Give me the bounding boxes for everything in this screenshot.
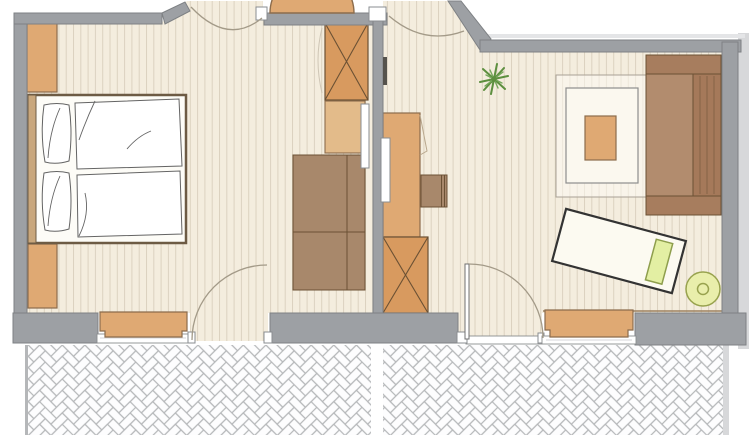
crossed-cabinet-living (383, 237, 428, 313)
crossed-cabinet-entry (325, 23, 368, 100)
bedroom-wall-mirror (361, 104, 369, 168)
wall-bottom-left (13, 313, 98, 343)
sofa (646, 55, 721, 215)
round-stool (686, 272, 720, 306)
bed-headboard (28, 95, 36, 243)
tall-wardrobe (293, 155, 365, 290)
sofa-armrest-top (646, 55, 721, 74)
pillow (42, 172, 71, 232)
exterior-line-top (483, 34, 745, 38)
rug-group (556, 75, 648, 197)
living-door-recess-floor (458, 313, 542, 339)
sofa-seat (646, 74, 693, 196)
desk-mirror (381, 138, 390, 202)
wall-cabinet-lower (28, 244, 57, 308)
double-bed (28, 95, 186, 243)
wall-cabinet-upper (27, 23, 57, 92)
floorplan-canvas (0, 0, 754, 435)
entry-door-post (369, 7, 386, 21)
coffee-table (585, 116, 616, 160)
wall-fitting-dark (383, 57, 387, 85)
balcony-divider (371, 345, 383, 435)
living-balcony-door-leaf (465, 264, 469, 339)
wall-top-left (14, 13, 162, 24)
side-cabinet (325, 101, 365, 153)
wall-bottom-right (635, 313, 746, 345)
exterior-shadow-right (738, 33, 749, 349)
wall-top-right (480, 40, 741, 52)
balcony-right-edge (723, 345, 729, 435)
living-window-bench (545, 310, 633, 337)
pillow (42, 104, 71, 164)
living-door-threshold (466, 336, 542, 344)
duvet-bottom (77, 171, 182, 237)
wall-left (14, 13, 27, 343)
entry-door-swing (270, 0, 354, 13)
balcony (25, 345, 729, 435)
balcony-left-edge (25, 345, 28, 435)
bedroom-door-post (264, 332, 272, 343)
wall-right (722, 42, 738, 314)
bedroom-door-recess-floor (190, 313, 268, 341)
bedroom-window-bench (100, 312, 187, 337)
sofa-armrest-bottom (646, 196, 721, 215)
wall-bottom-middle (270, 313, 458, 343)
floorplan-svg (0, 0, 754, 435)
desk-chair (421, 175, 447, 207)
